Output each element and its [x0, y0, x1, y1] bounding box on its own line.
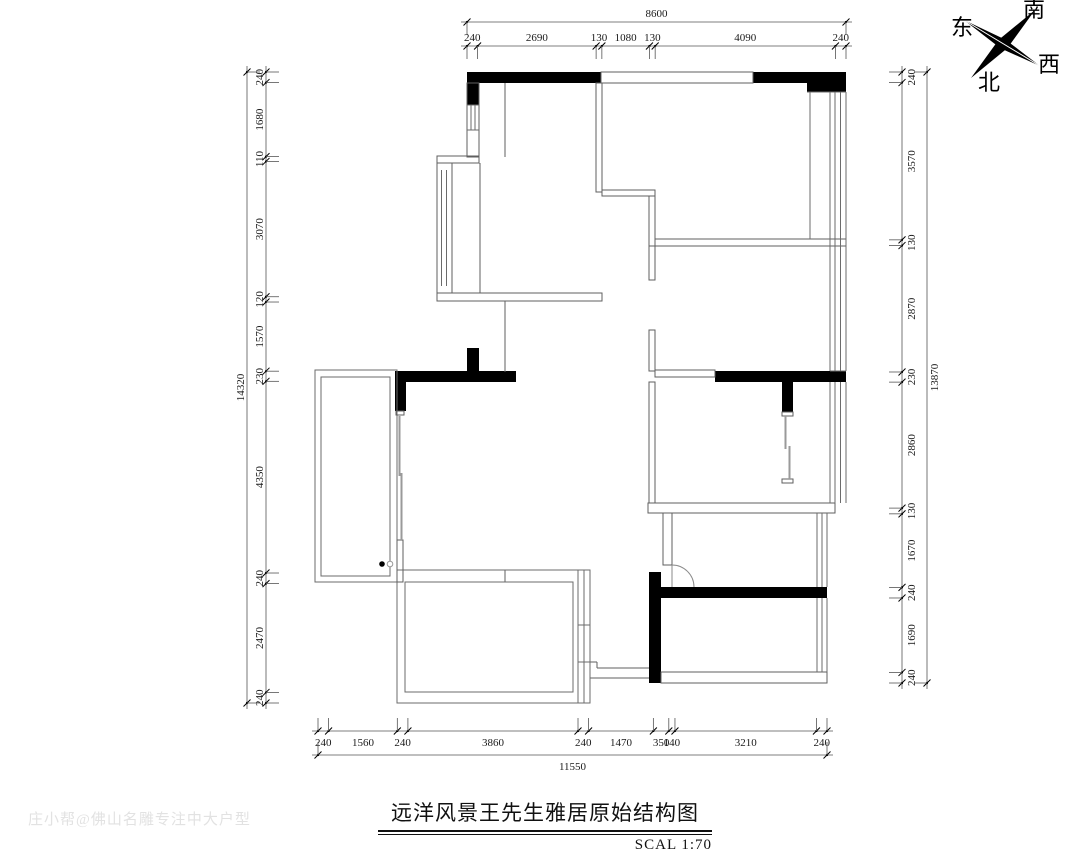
dim-label: 1680 [254, 108, 266, 131]
dim-label: 130 [644, 32, 661, 44]
dim-label: 13870 [929, 363, 941, 391]
balconies [315, 370, 590, 703]
wall-stub-mid-left [467, 348, 479, 372]
doors [396, 411, 793, 587]
compass-label-east: 东 [951, 15, 973, 40]
window-east-middle [830, 382, 846, 503]
dim-label: 240 [832, 32, 849, 44]
balcony-west-outer [315, 370, 397, 582]
window-east-upper [807, 92, 846, 371]
title-rule [378, 830, 712, 835]
reference-dots [379, 561, 393, 567]
dim-chain-right-segments: 24035701302870230286013016702401690240 [889, 66, 918, 689]
dim-label: 14320 [235, 373, 247, 401]
door-arc-small-room [672, 565, 694, 587]
dim-label: 240 [464, 32, 481, 44]
floorplan-page: 8600240269013010801304090240240156024038… [0, 0, 1080, 857]
dim-label: 240 [813, 737, 830, 749]
floor-plan-canvas: 8600240269013010801304090240240156024038… [0, 0, 1080, 857]
compass-label-north: 北 [978, 70, 1000, 95]
dim-label: 240 [575, 737, 592, 749]
load-bearing-walls [395, 72, 846, 683]
dim-chain-left-segments: 24016801103070120157023043502402470240 [254, 66, 279, 709]
compass: 东 南 西 北 [951, 0, 1060, 95]
dim-label: 230 [254, 368, 266, 385]
dim-label: 140 [664, 737, 681, 749]
wall-living-northwest [395, 371, 516, 411]
dim-label: 240 [394, 737, 411, 749]
wall-top-left [467, 72, 601, 105]
dim-label: 2690 [526, 32, 549, 44]
balcony-west-inner [321, 377, 390, 576]
dim-label: 3210 [735, 737, 758, 749]
dim-label: 120 [254, 291, 266, 308]
window-bedroom-a-west [442, 170, 447, 286]
page-title: 远洋风景王先生雅居原始结构图 [378, 797, 712, 827]
dim-label: 2860 [906, 434, 918, 457]
window-east-bath [817, 598, 827, 672]
dim-chain-bottom-segments: 2401560240386024014703501403210240 [312, 718, 833, 749]
dot-open [387, 561, 393, 567]
dim-label: 4090 [734, 32, 757, 44]
sliding-door-east-bedroom [786, 416, 790, 479]
title-block: 远洋风景王先生雅居原始结构图 SCAL 1:70 [378, 797, 712, 854]
dim-chain-top-segments: 240269013010801304090240 [461, 32, 852, 59]
dim-label: 230 [906, 368, 918, 385]
dim-label: 1470 [610, 737, 633, 749]
dim-label: 4350 [254, 466, 266, 489]
dim-label: 240 [906, 69, 918, 86]
dim-label: 3570 [906, 150, 918, 173]
window-room-g-east [578, 570, 590, 703]
dim-label: 2870 [906, 297, 918, 320]
dim-label: 110 [254, 150, 266, 167]
dim-label: 240 [254, 570, 266, 587]
dim-label: 1560 [352, 737, 375, 749]
dim-label: 240 [254, 689, 266, 706]
dot-filled [379, 561, 385, 567]
sliding-door-balcony [400, 416, 402, 540]
window-east-small-room [817, 513, 827, 587]
scale-label: SCAL 1:70 [378, 837, 712, 854]
passage-lines [590, 662, 649, 678]
dim-chain-right-total: 13870 [914, 66, 941, 689]
room-south-inner [405, 582, 573, 692]
dim-label: 1670 [906, 539, 918, 562]
dim-label: 240 [906, 584, 918, 601]
dim-label: 11550 [559, 761, 587, 773]
interior-divider-lines [480, 83, 505, 582]
watermark: 庄小帮@佛山名雕专注中大户型 [28, 808, 251, 829]
dim-label: 1080 [615, 32, 638, 44]
dim-label: 2470 [254, 627, 266, 650]
dim-chain-top-total: 8600 [461, 8, 852, 35]
wall-bath-corner [649, 572, 827, 683]
dim-label: 130 [906, 502, 918, 519]
dim-label: 8600 [646, 8, 669, 20]
compass-label-south: 南 [1023, 0, 1045, 22]
room-south-outer [397, 570, 590, 703]
dim-label: 240 [315, 737, 332, 749]
dim-label: 130 [906, 234, 918, 251]
dim-label: 1690 [906, 624, 918, 647]
wall-top-right [753, 72, 846, 92]
dim-label: 240 [906, 669, 918, 686]
window-top-left-column [467, 105, 479, 130]
dim-label: 3860 [482, 737, 505, 749]
dim-label: 130 [591, 32, 608, 44]
wall-living-northeast [715, 371, 846, 412]
dim-label: 3070 [254, 218, 266, 241]
dim-label: 240 [254, 69, 266, 86]
dim-label: 1570 [254, 325, 266, 348]
compass-label-west: 西 [1038, 52, 1060, 77]
